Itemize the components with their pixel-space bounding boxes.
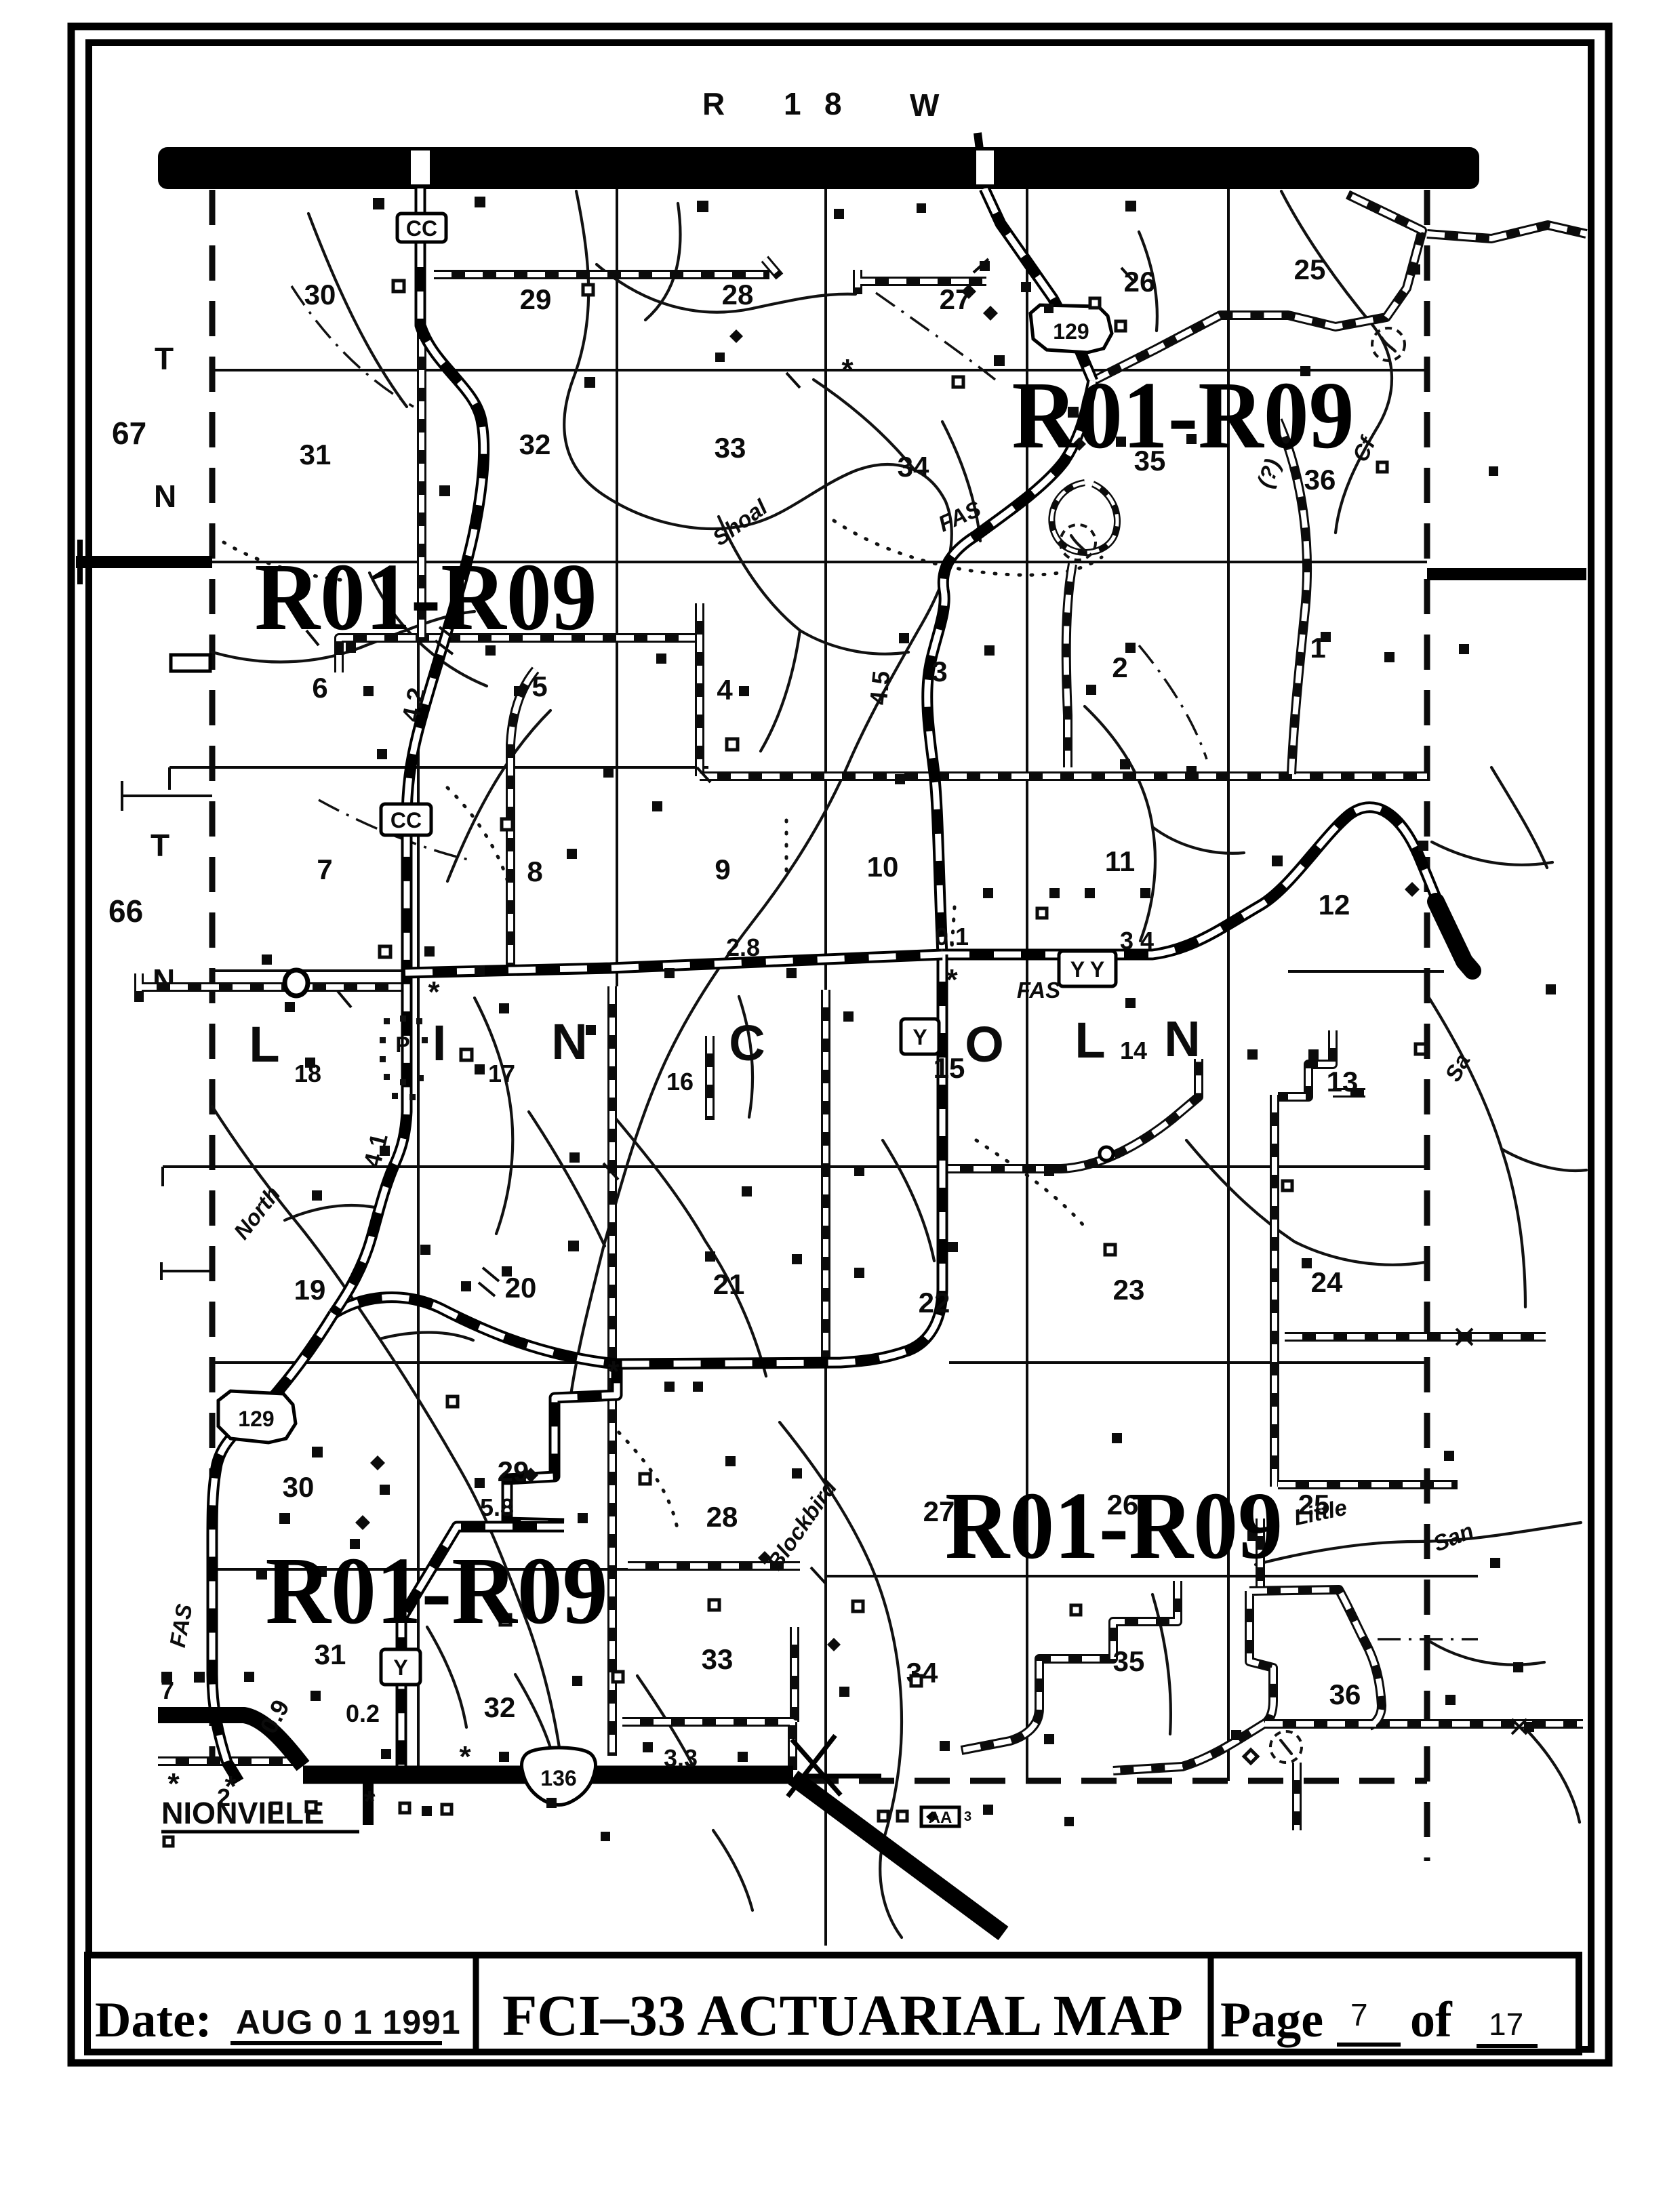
- svg-text:30: 30: [304, 279, 336, 310]
- svg-text:R: R: [702, 86, 726, 121]
- svg-text:L: L: [249, 1016, 279, 1072]
- svg-text:14: 14: [1120, 1037, 1147, 1064]
- svg-text:*: *: [363, 1785, 376, 1818]
- svg-text:0.1: 0.1: [935, 923, 969, 950]
- svg-text:3.3: 3.3: [664, 1744, 698, 1772]
- svg-text:O: O: [965, 1016, 1004, 1072]
- svg-text:*: *: [946, 963, 958, 997]
- svg-text:T: T: [151, 828, 169, 863]
- svg-text:2.8: 2.8: [726, 933, 760, 961]
- svg-text:19: 19: [294, 1274, 326, 1306]
- svg-text:FCI–33 ACTUARIAL MAP: FCI–33 ACTUARIAL MAP: [502, 1983, 1183, 2048]
- svg-text:11: 11: [1105, 845, 1135, 877]
- svg-text:CC: CC: [406, 216, 437, 241]
- svg-text:AUG 0 1 1991: AUG 0 1 1991: [236, 2003, 461, 2041]
- svg-text:17: 17: [1489, 2007, 1523, 2042]
- svg-text:N: N: [154, 479, 176, 514]
- svg-text:28: 28: [706, 1501, 738, 1533]
- svg-text:FAS: FAS: [1017, 978, 1060, 1003]
- svg-text:R01-R09: R01-R09: [266, 1537, 608, 1644]
- svg-text:8: 8: [527, 856, 542, 887]
- svg-text:30: 30: [283, 1471, 315, 1503]
- svg-text:35: 35: [1113, 1645, 1145, 1677]
- svg-text:T: T: [155, 341, 174, 376]
- svg-text:21: 21: [713, 1268, 745, 1300]
- svg-text:W: W: [910, 87, 940, 123]
- svg-text:P: P: [395, 1032, 409, 1057]
- svg-text:129: 129: [1053, 319, 1089, 344]
- svg-text:N: N: [1164, 1011, 1200, 1067]
- svg-text:*: *: [167, 1767, 180, 1801]
- svg-text:of: of: [1410, 1992, 1453, 2048]
- svg-text:67: 67: [112, 416, 146, 451]
- svg-text:0.2: 0.2: [346, 1700, 380, 1727]
- svg-text:R01-R09: R01-R09: [255, 543, 597, 650]
- svg-text:2: 2: [1112, 651, 1127, 683]
- svg-text:7: 7: [1350, 1997, 1368, 2032]
- svg-text:AA: AA: [929, 1809, 952, 1827]
- svg-text:NIONVILLE: NIONVILLE: [161, 1796, 324, 1830]
- svg-text:3: 3: [931, 656, 947, 687]
- svg-text:4: 4: [717, 674, 733, 706]
- svg-text:Date:: Date:: [95, 1992, 212, 2048]
- svg-text:Page: Page: [1220, 1992, 1323, 2048]
- svg-text:3: 3: [964, 1809, 971, 1824]
- svg-text:136: 136: [540, 1766, 576, 1790]
- svg-text:16: 16: [666, 1068, 694, 1095]
- svg-text:66: 66: [108, 893, 143, 929]
- svg-text:R01-R09: R01-R09: [1012, 361, 1355, 468]
- svg-text:5: 5: [531, 670, 547, 702]
- svg-text:15: 15: [934, 1052, 965, 1084]
- svg-text:CC: CC: [390, 808, 422, 832]
- svg-text:8: 8: [824, 86, 843, 121]
- svg-text:36: 36: [1329, 1678, 1361, 1710]
- svg-text:28: 28: [722, 279, 754, 310]
- svg-text:L: L: [1075, 1012, 1105, 1068]
- svg-text:32: 32: [519, 428, 551, 460]
- svg-text:7: 7: [317, 853, 332, 885]
- svg-text:1: 1: [784, 86, 803, 121]
- svg-text:N: N: [153, 963, 175, 998]
- svg-text:4.5: 4.5: [864, 670, 896, 706]
- svg-text:9: 9: [715, 853, 730, 885]
- svg-text:33: 33: [715, 432, 746, 464]
- svg-text:*: *: [841, 353, 854, 386]
- svg-text:36: 36: [1304, 464, 1336, 496]
- svg-text:23: 23: [1113, 1274, 1145, 1306]
- svg-text:26: 26: [1124, 266, 1156, 298]
- svg-text:25: 25: [1294, 254, 1326, 285]
- svg-text:32: 32: [484, 1691, 516, 1723]
- svg-text:20: 20: [505, 1272, 537, 1304]
- svg-text:17: 17: [488, 1060, 515, 1087]
- svg-text:31: 31: [300, 439, 332, 470]
- svg-text:C: C: [729, 1015, 765, 1071]
- svg-text:N: N: [551, 1013, 587, 1070]
- svg-text:*: *: [428, 976, 440, 1009]
- svg-text:22: 22: [919, 1287, 950, 1319]
- svg-text:29: 29: [498, 1455, 529, 1487]
- svg-text:5.8: 5.8: [480, 1493, 514, 1521]
- svg-text:*: *: [459, 1740, 471, 1773]
- svg-text:I: I: [433, 1015, 447, 1071]
- svg-text:3 4: 3 4: [1120, 927, 1154, 954]
- svg-text:6: 6: [312, 672, 327, 704]
- svg-text:34: 34: [898, 451, 929, 483]
- svg-text:*: *: [224, 1770, 237, 1803]
- svg-text:Y: Y: [393, 1655, 407, 1680]
- svg-text:13: 13: [1327, 1066, 1359, 1098]
- svg-text:Y Y: Y Y: [1070, 957, 1104, 982]
- svg-text:10: 10: [867, 851, 899, 883]
- svg-text:24: 24: [1311, 1266, 1343, 1298]
- svg-text:29: 29: [520, 283, 552, 315]
- svg-text:Y: Y: [912, 1025, 927, 1049]
- svg-text:12: 12: [1319, 889, 1350, 921]
- svg-text:129: 129: [238, 1407, 274, 1431]
- svg-text:R01-R09: R01-R09: [945, 1472, 1283, 1579]
- svg-text:*: *: [607, 1355, 620, 1388]
- svg-text:33: 33: [702, 1643, 734, 1675]
